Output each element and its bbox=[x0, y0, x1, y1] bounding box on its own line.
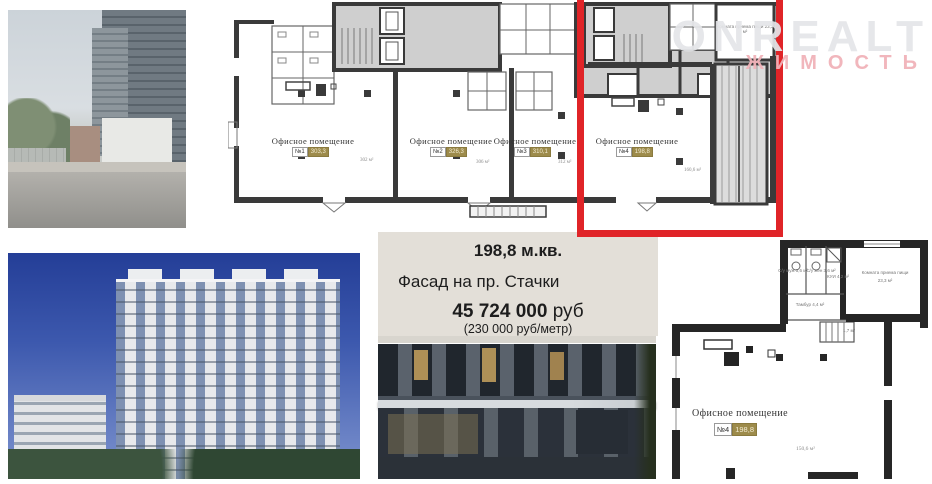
room-dining: Комната приема пищи bbox=[854, 270, 916, 275]
price-card-facade: Фасад на пр. Стачки bbox=[398, 272, 559, 292]
render-dusk-garage-door bbox=[576, 410, 628, 454]
price-card-bottom-strip bbox=[378, 336, 656, 343]
render-dusk-foliage bbox=[634, 344, 656, 479]
detail-area-note: 150,6 м² bbox=[796, 446, 815, 452]
detail-office-label: Офисное помещение bbox=[686, 408, 794, 419]
detail-office-number: №4 bbox=[714, 423, 732, 436]
room-tambur: Тамбур 4,4 м² bbox=[790, 302, 830, 307]
office-1-number: №1 bbox=[292, 147, 308, 157]
building-render-day bbox=[8, 253, 360, 479]
detail-office-badge: №4 198,8 bbox=[714, 423, 757, 436]
room-dining-area: 23,3 м² bbox=[854, 278, 916, 283]
price-card-area: 198,8 м.кв. bbox=[474, 241, 562, 261]
office-3-area-badge: 310,1 bbox=[530, 147, 551, 157]
office-1-badge: №1 303,3 bbox=[292, 147, 329, 157]
office-1-area-badge: 303,3 bbox=[308, 147, 329, 157]
render-dusk-lit-window bbox=[550, 352, 564, 380]
office-3-badge: №3 310,1 bbox=[514, 147, 551, 157]
room-kui: КУИ 4,2 м² bbox=[826, 274, 850, 279]
office-3-number: №3 bbox=[514, 147, 530, 157]
building-render-dusk bbox=[378, 344, 656, 479]
render-dusk-lit-window bbox=[482, 348, 496, 382]
render-dusk-ground bbox=[378, 457, 656, 479]
office-1-label: Офисное помещение bbox=[258, 136, 368, 146]
price-currency: руб bbox=[553, 301, 584, 322]
office-2-area-note: 306 м² bbox=[476, 160, 489, 165]
room-stairs: 1,7 м² bbox=[836, 328, 862, 333]
room-wc-m: С/у муж 3,6 м² bbox=[778, 268, 808, 273]
render-dusk-lobby-glow bbox=[388, 414, 478, 454]
room-wc-f: С/у жен 3,6 м² bbox=[806, 268, 836, 273]
office-3-label: Офисное помещение bbox=[480, 136, 590, 146]
office-2-number: №2 bbox=[430, 147, 446, 157]
price-value: 45 724 000 bbox=[452, 301, 547, 322]
floorplan-detail: С/у муж 3,6 м² С/у жен 3,6 м² КУИ 4,2 м²… bbox=[668, 236, 932, 479]
render-dusk-lit-window bbox=[414, 350, 428, 380]
office-2-badge: №2 326,3 bbox=[430, 147, 467, 157]
street-photo bbox=[8, 10, 186, 228]
office-1-area-note: 302 м² bbox=[360, 158, 373, 163]
office-2-area-badge: 326,3 bbox=[446, 147, 467, 157]
render-day-trees bbox=[8, 449, 360, 479]
office-3-area-note: 312 м² bbox=[558, 160, 571, 165]
price-card: 198,8 м.кв. Фасад на пр. Стачки 45 724 0… bbox=[378, 232, 658, 336]
photo-brick-building bbox=[66, 126, 100, 162]
render-dusk-terrace bbox=[378, 400, 656, 408]
price-card-price: 45 724 000 руб bbox=[452, 301, 583, 323]
price-card-per-meter: (230 000 руб/метр) bbox=[464, 322, 573, 336]
photo-road bbox=[8, 172, 186, 228]
detail-office-area-badge: 198,8 bbox=[732, 423, 757, 436]
watermark-sub: ЖИМОСТЬ bbox=[746, 52, 928, 75]
